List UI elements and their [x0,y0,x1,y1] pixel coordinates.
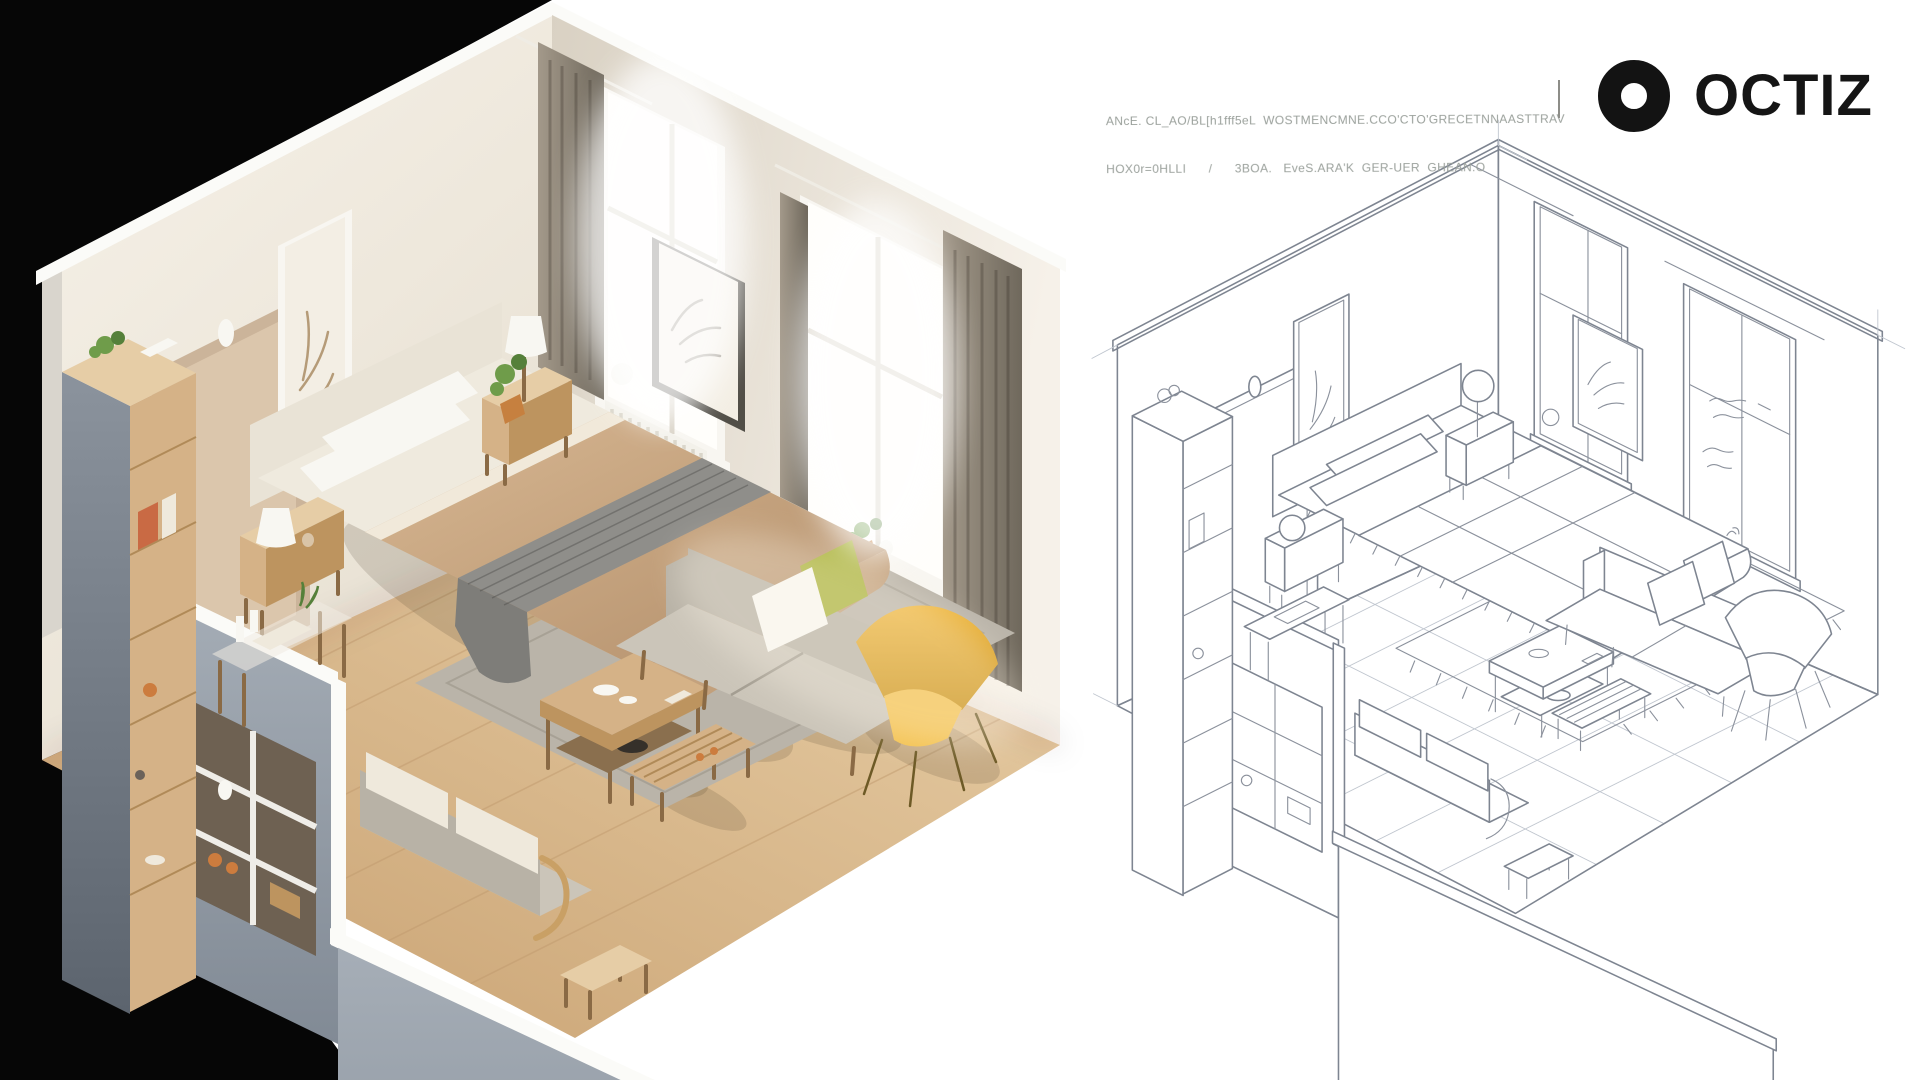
scene-artwork [0,0,1920,1080]
bookshelf-tower [62,331,196,1014]
table-lamp [505,316,547,357]
sketch-panel [1064,120,1920,1080]
sketch-lamp [1462,370,1493,401]
table-lamp [256,508,296,548]
brand-name: OCTIZ [1694,60,1873,132]
sketch-bookshelf-tower [1132,385,1232,895]
donut-ring-icon [1598,60,1670,132]
candle [250,610,258,632]
render-panel [0,0,1066,1080]
sketch-wall-sconce [1249,376,1261,397]
annotation-line-1: ANcE. CL_AO/BL[h1fff5eL WOSTMENCMNE.CCO'… [1106,111,1546,129]
sketch-lamp [1279,515,1304,540]
handwritten-annotation: ANcE. CL_AO/BL[h1fff5eL WOSTMENCMNE.CCO'… [1106,79,1547,193]
annotation-line-2: HOX0r=0HLLI / 3BOA. EveS.ARA'K GER-UER G… [1106,159,1546,177]
header-divider [1558,80,1560,118]
poster-canvas: ANcE. CL_AO/BL[h1fff5eL WOSTMENCMNE.CCO'… [0,0,1920,1080]
wall-sconce [218,319,234,347]
sketch-stool [1504,844,1573,899]
brand-logo: OCTIZ [1598,60,1873,132]
candle [236,616,244,642]
